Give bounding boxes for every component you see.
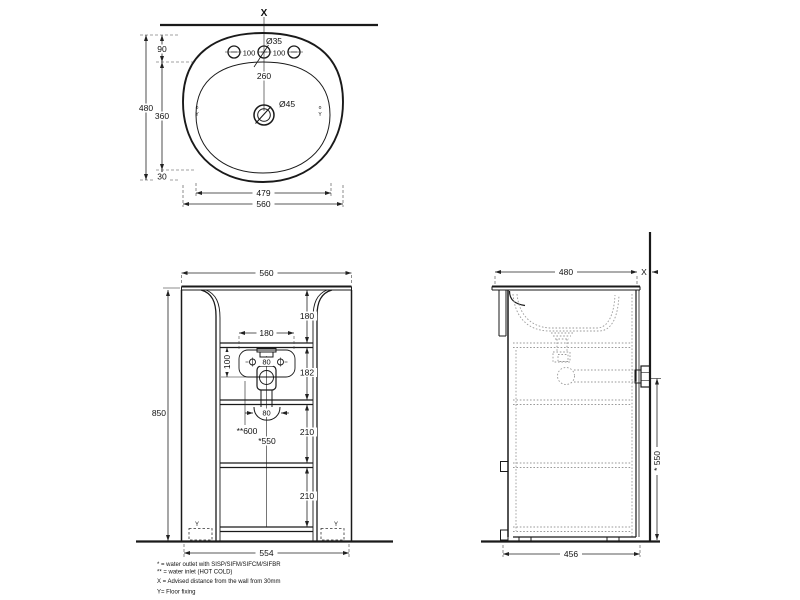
top-view: X o Y o Y 100 bbox=[137, 8, 379, 209]
dim-base-depth: 456 bbox=[560, 549, 582, 559]
dim-hole-spacing-right: 100 bbox=[272, 48, 288, 58]
dim-front-width: 560 bbox=[256, 268, 278, 278]
svg-text:182: 182 bbox=[300, 368, 314, 378]
svg-text:80: 80 bbox=[262, 409, 270, 418]
label-hole-diameter: Ø35 bbox=[266, 36, 282, 46]
dim-inlet-spacing: 80 bbox=[260, 358, 274, 367]
front-view: 560 bbox=[136, 268, 393, 558]
dim-base-width: 554 bbox=[256, 548, 278, 558]
fixing-y-left: Y bbox=[195, 112, 199, 118]
label-drain-diameter: Ø45 bbox=[279, 99, 295, 109]
dim-overall-width-top: 560 bbox=[253, 199, 275, 209]
svg-text:480: 480 bbox=[139, 103, 153, 113]
svg-text:80: 80 bbox=[262, 358, 270, 367]
label-outlet-height: *550 bbox=[255, 436, 279, 446]
svg-text:560: 560 bbox=[259, 268, 273, 278]
front-left-inner-wall bbox=[201, 290, 216, 541]
footnote-wall-distance: X = Advised distance from the wall from … bbox=[157, 579, 281, 585]
wall-outlet-fitting bbox=[635, 366, 650, 387]
side-view: 480 X bbox=[481, 232, 662, 559]
dim-shelf-gap-3: 210 bbox=[297, 491, 317, 501]
dim-hole-spacing-left: 100 bbox=[242, 48, 258, 58]
svg-text:260: 260 bbox=[257, 71, 271, 81]
svg-text:554: 554 bbox=[259, 548, 273, 558]
drawing-page: X o Y o Y 100 bbox=[0, 0, 800, 600]
dim-outlet-height: * 550 bbox=[652, 447, 662, 475]
footnote-floor-fixing: Y= Floor fixing bbox=[157, 590, 196, 596]
floor-fixing-right-box bbox=[321, 529, 344, 541]
front-apron bbox=[499, 290, 506, 336]
svg-text:456: 456 bbox=[564, 549, 578, 559]
dim-recess-width: 180 bbox=[257, 328, 277, 338]
floor-fixing-left-box bbox=[189, 529, 212, 541]
svg-text:100: 100 bbox=[243, 49, 256, 58]
dim-front-margin: 30 bbox=[155, 172, 169, 182]
svg-text:100: 100 bbox=[273, 49, 286, 58]
dim-trap-width: 80 bbox=[260, 409, 274, 418]
dim-inlet-drop: 100 bbox=[222, 352, 232, 372]
svg-text:360: 360 bbox=[155, 111, 169, 121]
footnote-inlet: ** = water inlet (HOT COLD) bbox=[157, 570, 232, 576]
dim-shelf-gap-1: 182 bbox=[297, 368, 317, 378]
svg-text:180: 180 bbox=[259, 328, 273, 338]
dim-shelf-gap-2: 210 bbox=[297, 427, 317, 437]
wall-distance-marker: X bbox=[261, 8, 268, 19]
svg-text:180: 180 bbox=[300, 311, 314, 321]
svg-text:30: 30 bbox=[157, 172, 167, 182]
dim-top-to-shelf: 180 bbox=[297, 311, 317, 321]
footnotes: * = water outlet with SISP/SIFM/SIFCM/SI… bbox=[157, 562, 281, 596]
svg-text:*550: *550 bbox=[258, 436, 276, 446]
dim-depth: 480 bbox=[555, 267, 577, 277]
dim-basin-width: 479 bbox=[253, 188, 275, 198]
front-tab-lower bbox=[501, 530, 509, 540]
fixing-y-right: Y bbox=[318, 112, 322, 118]
floor-fixing-right-label: Y bbox=[334, 522, 338, 528]
technical-drawing: X o Y o Y 100 bbox=[0, 0, 800, 600]
dim-holes-to-drain: 260 bbox=[253, 71, 275, 81]
front-tab-upper bbox=[501, 462, 509, 472]
hidden-lines bbox=[513, 294, 638, 537]
fixing-o-right: o bbox=[319, 105, 322, 111]
dim-height: 850 bbox=[152, 408, 166, 418]
front-right-inner-wall bbox=[317, 290, 332, 541]
svg-text:90: 90 bbox=[157, 44, 167, 54]
svg-text:210: 210 bbox=[300, 491, 314, 501]
svg-text:210: 210 bbox=[300, 427, 314, 437]
wall-gap-marker: X bbox=[641, 267, 647, 277]
svg-text:* 550: * 550 bbox=[652, 451, 662, 471]
footnote-outlet: * = water outlet with SISP/SIFM/SIFCM/SI… bbox=[157, 562, 281, 568]
fixing-o-left: o bbox=[196, 105, 199, 111]
dim-rim-to-holes: 90 bbox=[155, 44, 169, 54]
floor-fixing-left-label: Y bbox=[195, 522, 199, 528]
svg-text:479: 479 bbox=[256, 188, 270, 198]
svg-text:560: 560 bbox=[256, 199, 270, 209]
label-inlet-height: **600 bbox=[237, 426, 258, 436]
svg-text:100: 100 bbox=[222, 355, 232, 369]
svg-text:480: 480 bbox=[559, 267, 573, 277]
dim-basin-depth: 360 bbox=[152, 111, 173, 121]
